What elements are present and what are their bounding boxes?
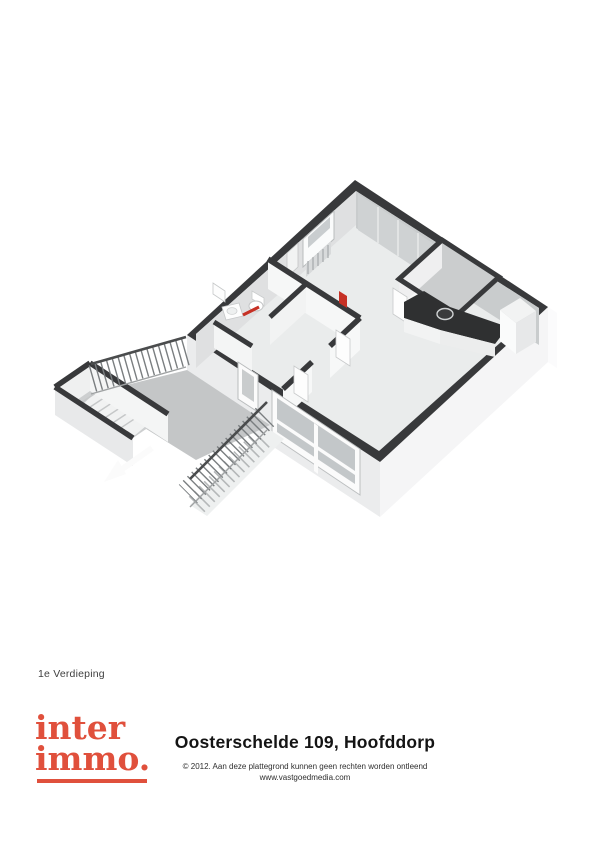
logo-underline — [37, 779, 147, 783]
property-title: Oosterschelde 109, Hoofddorp — [150, 732, 460, 753]
floorplan-image — [0, 0, 600, 600]
footer: inter immo. Oosterschelde 109, Hoofddorp… — [0, 700, 600, 848]
washbasin-bowl — [227, 308, 237, 315]
floorplan-svg — [0, 0, 600, 600]
stair-arrow-head — [104, 460, 126, 482]
exterior-wall-e-return — [548, 307, 557, 368]
interimmo-logo: inter immo. — [35, 712, 155, 775]
address-block: Oosterschelde 109, Hoofddorp © 2012. Aan… — [150, 732, 460, 784]
kitchen-sink — [437, 309, 453, 320]
bathroom-mirror — [213, 283, 225, 302]
living-window-mullion — [314, 423, 318, 474]
copyright: © 2012. Aan deze plattegrond kunnen geen… — [150, 762, 460, 784]
page: 1e Verdieping inter immo. Oosterschelde … — [0, 0, 600, 848]
copyright-line-2: www.vastgoedmedia.com — [150, 773, 460, 784]
logo-line-2: immo. — [35, 743, 155, 774]
copyright-line-1: © 2012. Aan deze plattegrond kunnen geen… — [150, 762, 460, 773]
floor-label: 1e Verdieping — [38, 668, 105, 680]
